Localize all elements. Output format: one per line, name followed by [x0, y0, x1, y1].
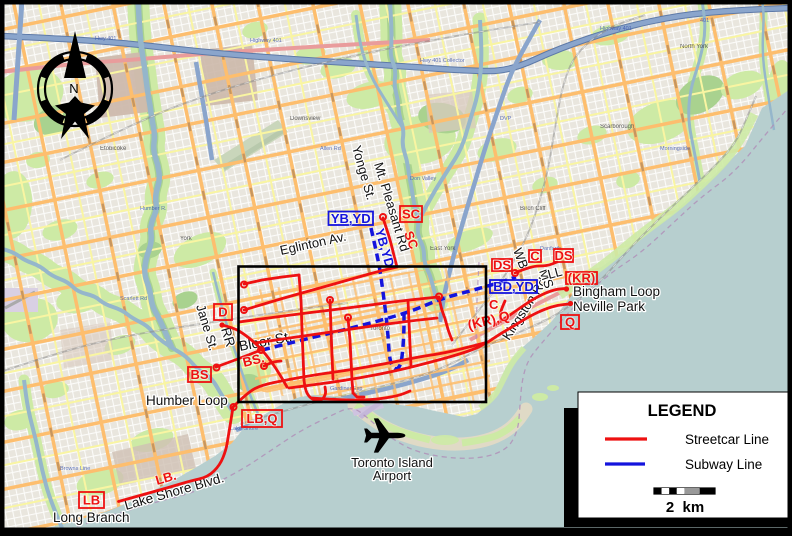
svg-text:LEGEND: LEGEND [648, 402, 717, 420]
svg-text:Gardiner Exp: Gardiner Exp [330, 386, 362, 392]
svg-text:(KR): (KR) [568, 271, 595, 286]
svg-text:Long Branch: Long Branch [53, 510, 130, 525]
svg-text:Etobicoke: Etobicoke [100, 146, 127, 152]
svg-text:Airport: Airport [373, 468, 412, 483]
svg-text:401: 401 [700, 18, 709, 24]
svg-text:Birch Cliff: Birch Cliff [520, 206, 546, 212]
svg-text:LB,Q: LB,Q [246, 411, 277, 426]
svg-text:DS: DS [554, 248, 572, 263]
svg-text:Hwy 401 Collector: Hwy 401 Collector [420, 58, 465, 64]
svg-text:LB: LB [83, 493, 100, 508]
svg-text:Q: Q [565, 315, 575, 330]
svg-text:North York: North York [680, 44, 709, 50]
svg-text:Streetcar Line: Streetcar Line [685, 432, 769, 447]
svg-text:BD,YD: BD,YD [493, 279, 533, 294]
svg-text:Highway 401: Highway 401 [600, 26, 632, 32]
svg-text:Bingham Loop: Bingham Loop [573, 284, 660, 299]
svg-text:BS: BS [190, 367, 208, 382]
svg-text:N: N [69, 81, 78, 96]
svg-text:C: C [530, 249, 540, 264]
svg-text:Humber R.: Humber R. [140, 206, 167, 212]
svg-text:YB,YD: YB,YD [331, 211, 371, 226]
svg-text:DS: DS [493, 258, 511, 273]
svg-text:Scarlett Rd: Scarlett Rd [120, 296, 147, 302]
svg-text:East York: East York [430, 246, 456, 252]
svg-text:Browns Line: Browns Line [60, 466, 90, 472]
svg-text:Downsview: Downsview [290, 116, 321, 122]
svg-text:Humber Loop: Humber Loop [146, 393, 228, 408]
svg-text:SC: SC [402, 207, 421, 222]
svg-text:2 km: 2 km [666, 499, 704, 516]
svg-text:C: C [489, 297, 499, 312]
svg-text:Hwy 401: Hwy 401 [95, 36, 116, 42]
svg-text:Scarborough: Scarborough [600, 124, 634, 130]
svg-text:Highway 401: Highway 401 [250, 38, 282, 44]
svg-text:DVP: DVP [500, 116, 512, 122]
svg-text:Subway Line: Subway Line [685, 457, 762, 472]
svg-text:D: D [218, 305, 227, 320]
svg-text:Morningside: Morningside [660, 146, 690, 152]
svg-text:Neville Park: Neville Park [573, 299, 645, 314]
svg-text:Allen Rd: Allen Rd [320, 146, 341, 152]
svg-text:York: York [180, 236, 193, 242]
svg-text:Don Valley: Don Valley [410, 176, 436, 182]
